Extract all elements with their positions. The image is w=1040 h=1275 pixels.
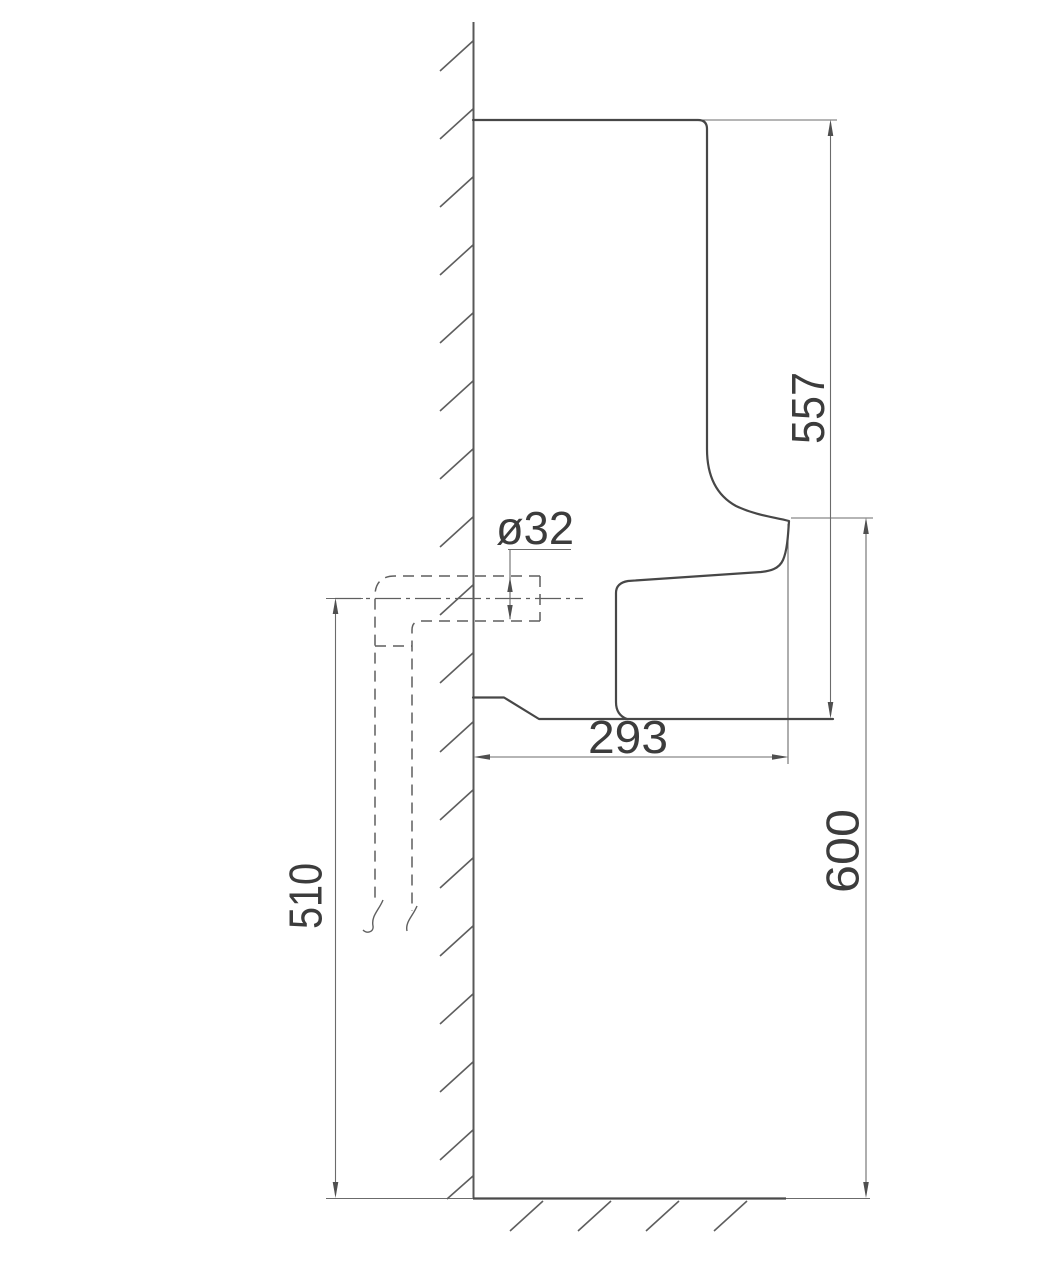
wall-hatching xyxy=(440,41,473,1199)
dimension-outlet-height: 510 xyxy=(280,598,339,1198)
pipe-outer-edge xyxy=(375,576,540,902)
fixture-profile xyxy=(473,120,833,719)
pipe-inner-edge xyxy=(412,621,540,911)
floor xyxy=(473,1199,786,1232)
pipe-break-right xyxy=(407,906,417,931)
dim-510-arrow-down xyxy=(333,1182,339,1198)
dim-557-arrow-down xyxy=(828,702,834,719)
hidden-drain-pipe xyxy=(375,576,540,911)
dim-600-arrow-down xyxy=(863,1182,869,1198)
dim-600-arrow-up xyxy=(863,518,869,535)
fixture-outline xyxy=(473,120,789,719)
dim-557-arrow-up xyxy=(828,120,834,137)
pipe-break-marks xyxy=(363,900,417,932)
technical-drawing-page: 557 600 510 293 ø32 xyxy=(0,0,1040,1275)
dim-293-label: 293 xyxy=(588,711,668,763)
dim-o32-label: ø32 xyxy=(496,502,574,554)
urinal-side-elevation-drawing: 557 600 510 293 ø32 xyxy=(0,0,1040,1275)
extension-lines xyxy=(326,120,873,1199)
dim-557-label: 557 xyxy=(782,372,834,444)
wall xyxy=(440,22,474,1199)
dim-293-arrow-left xyxy=(474,754,491,760)
dim-o32-arrow-up xyxy=(507,577,512,592)
dim-510-label: 510 xyxy=(280,863,332,929)
dim-293-arrow-right xyxy=(772,754,789,760)
dim-510-arrow-up xyxy=(333,598,339,614)
dimension-rim-height: 600 xyxy=(817,518,869,1199)
dim-600-label: 600 xyxy=(817,809,869,893)
dim-o32-arrow-down xyxy=(507,605,512,620)
dimension-overall-height: 557 xyxy=(782,120,834,719)
dimension-outlet-diameter: ø32 xyxy=(496,502,574,620)
pipe-break-left xyxy=(363,900,383,932)
floor-hatching xyxy=(510,1201,747,1231)
